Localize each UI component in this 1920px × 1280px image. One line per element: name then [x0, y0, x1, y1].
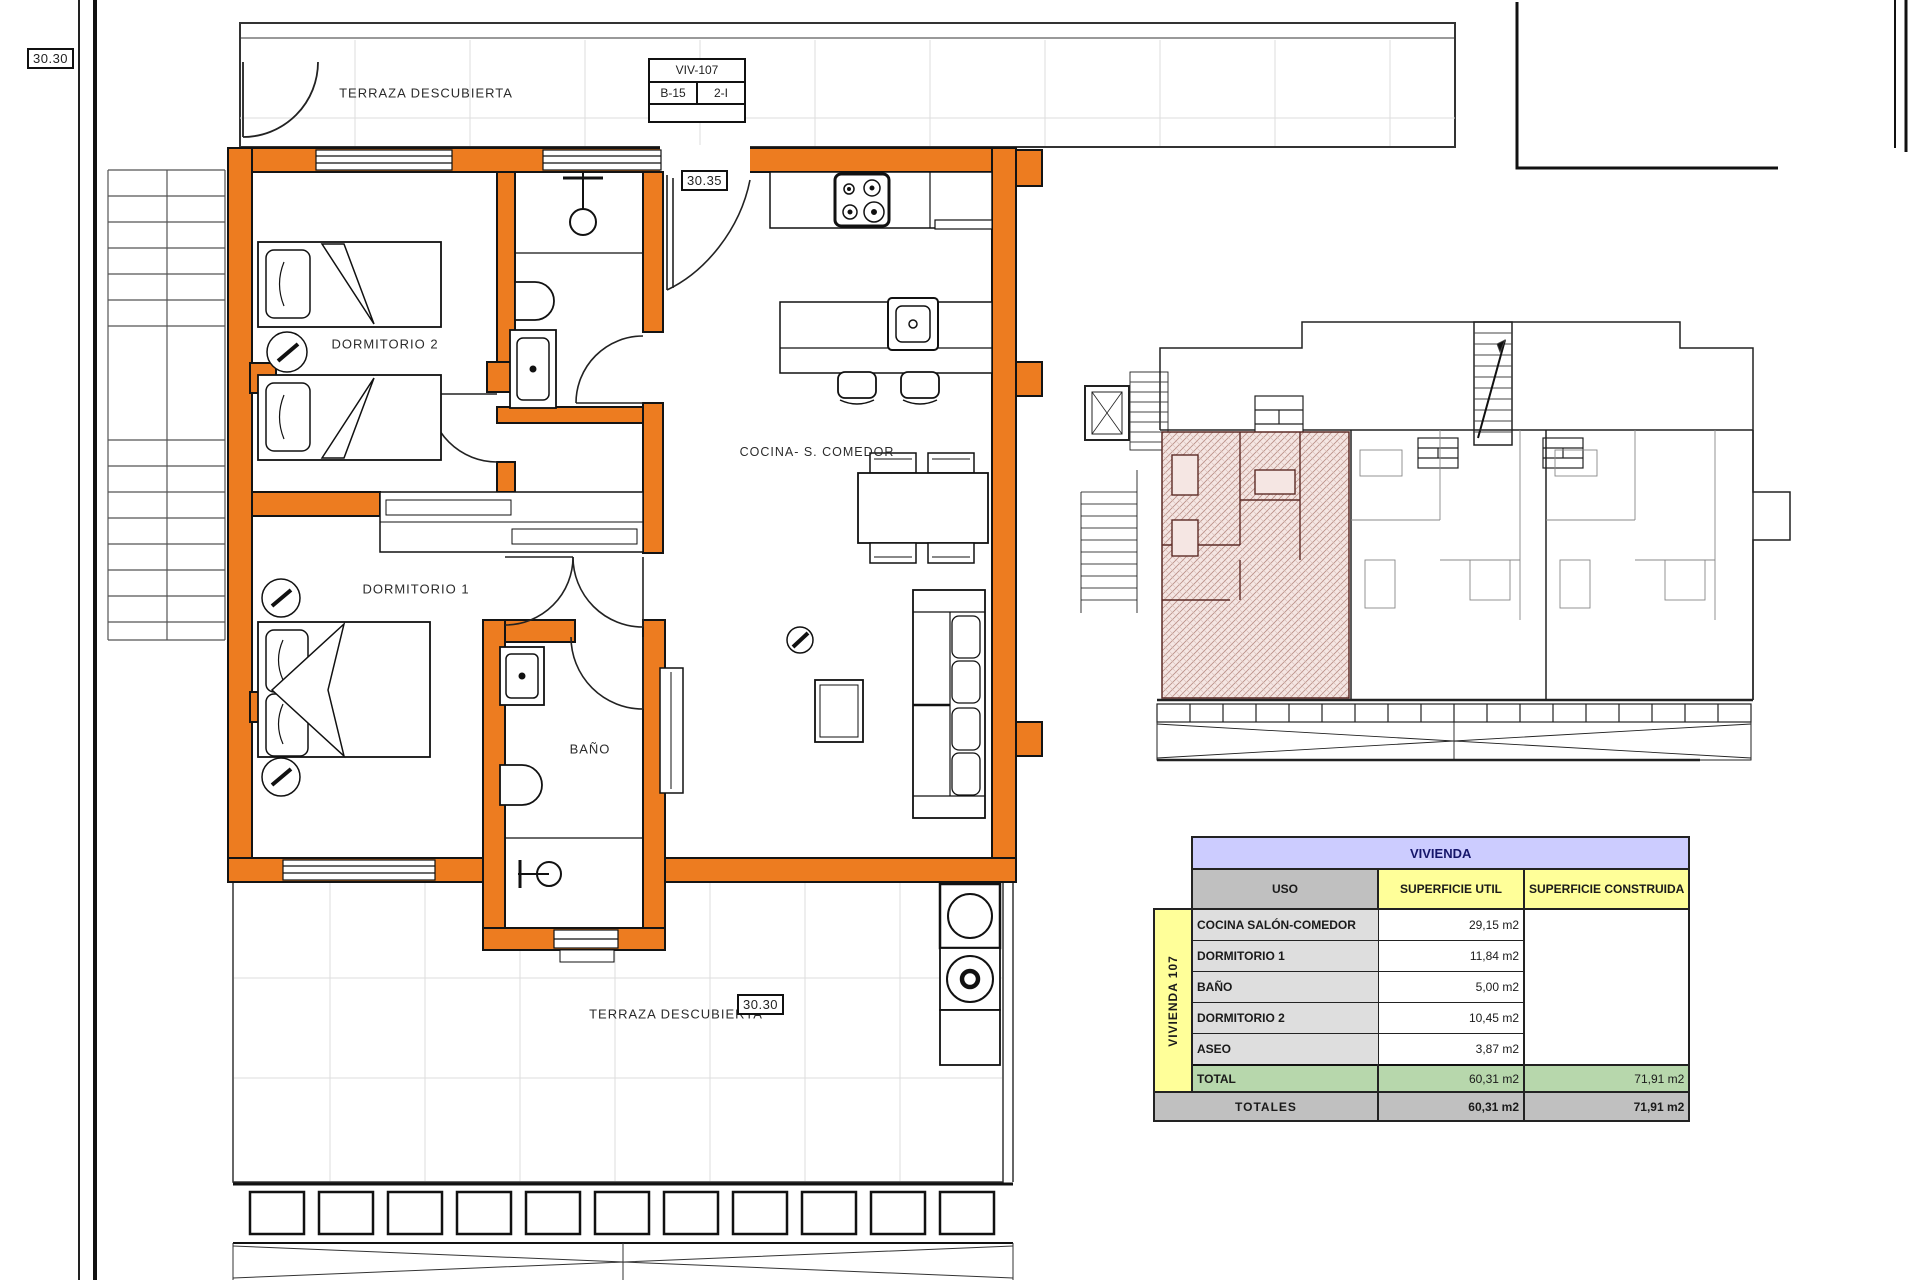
totales-construida: 71,91 m2 — [1524, 1092, 1689, 1121]
entry-level-marker: 30.35 — [681, 170, 728, 191]
util-cell: 5,00 m2 — [1378, 972, 1524, 1003]
stairs-icon — [1474, 322, 1512, 445]
util-cell: 3,87 m2 — [1378, 1034, 1524, 1066]
group-label-cell: VIVIENDA 107 — [1154, 909, 1192, 1092]
closet — [380, 492, 643, 552]
laundry-area — [940, 884, 1000, 1065]
floor-plan-sheet: 30.30 TERRAZA DESCUBIERTA VIV-107 B-15 2… — [0, 0, 1920, 1280]
total-util: 60,31 m2 — [1378, 1065, 1524, 1092]
uso-cell: BAÑO — [1192, 972, 1378, 1003]
toilet-icon — [500, 765, 542, 805]
construida-empty-cell — [1524, 909, 1689, 1065]
util-cell: 10,45 m2 — [1378, 1003, 1524, 1034]
col-header-uso: USO — [1192, 869, 1378, 909]
room-label-cocina: COCINA- S. COMEDOR — [740, 445, 895, 459]
util-cell: 11,84 m2 — [1378, 941, 1524, 972]
uso-cell: ASEO — [1192, 1034, 1378, 1066]
room-label-bano: BAÑO — [570, 742, 611, 757]
kitchen-island — [780, 302, 992, 373]
terrace-top-label: TERRAZA DESCUBIERTA — [339, 86, 513, 101]
balustrade — [233, 1184, 1013, 1243]
sofa-icon — [913, 590, 985, 818]
sink-icon — [888, 298, 938, 350]
total-construida: 71,91 m2 — [1524, 1065, 1689, 1092]
totales-label: TOTALES — [1154, 1092, 1378, 1121]
apartment-unit — [228, 145, 1042, 962]
exterior-stairs — [108, 170, 225, 640]
stove-icon — [835, 174, 889, 226]
toilet-icon — [515, 282, 554, 320]
util-cell: 29,15 m2 — [1378, 909, 1524, 941]
totales-row: TOTALES 60,31 m2 71,91 m2 — [1154, 1092, 1689, 1121]
uso-cell: DORMITORIO 1 — [1192, 941, 1378, 972]
table-row: VIVIENDA 107 COCINA SALÓN-COMEDOR 29,15 … — [1154, 909, 1689, 941]
laundry-sink-icon — [948, 894, 992, 938]
lower-deck — [233, 1243, 1013, 1280]
uso-cell: COCINA SALÓN-COMEDOR — [1192, 909, 1378, 941]
level-marker: 30.30 — [27, 48, 74, 69]
unit-code: VIV-107 — [650, 60, 744, 83]
elevator-icon — [1085, 386, 1129, 440]
terrace-level-marker: 30.30 — [737, 994, 784, 1015]
areas-table: VIVIENDA USO SUPERFICIE UTIL SUPERFICIE … — [1153, 836, 1690, 1122]
unit-title-block: VIV-107 B-15 2-I — [648, 58, 746, 123]
portal-code: 2-I — [698, 83, 744, 103]
room-label-dormitorio1: DORMITORIO 1 — [362, 582, 469, 597]
site-balustrade — [1157, 700, 1753, 760]
total-label: TOTAL — [1192, 1065, 1378, 1092]
table-title: VIVIENDA — [1192, 837, 1689, 869]
block-code: B-15 — [650, 83, 698, 103]
site-overview-plan — [1081, 322, 1790, 760]
uso-cell: DORMITORIO 2 — [1192, 1003, 1378, 1034]
total-row: TOTAL 60,31 m2 71,91 m2 — [1154, 1065, 1689, 1092]
totales-util: 60,31 m2 — [1378, 1092, 1524, 1121]
col-header-superficie-construida: SUPERFICIE CONSTRUIDA — [1524, 869, 1689, 909]
col-header-superficie-util: SUPERFICIE UTIL — [1378, 869, 1524, 909]
room-label-dormitorio2: DORMITORIO 2 — [331, 337, 438, 352]
